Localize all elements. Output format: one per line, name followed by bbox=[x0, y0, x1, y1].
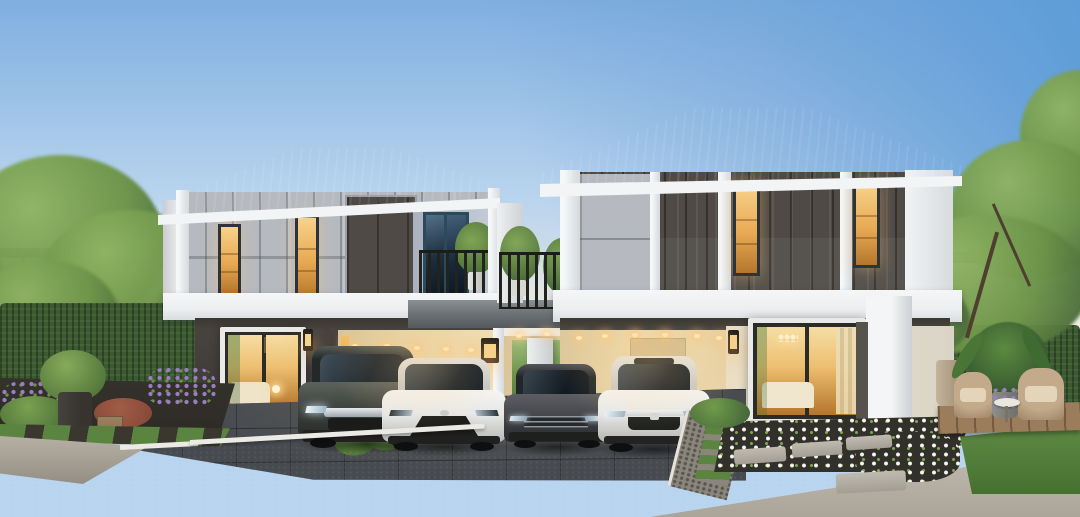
house-right-gray-panel-seam bbox=[580, 238, 650, 240]
side-table-leg bbox=[1005, 406, 1008, 422]
car-vw-headlight-left bbox=[509, 416, 527, 421]
car-wheel bbox=[470, 442, 494, 451]
house-right-corner-column bbox=[866, 296, 912, 428]
carport-glow-right bbox=[555, 330, 745, 430]
garden-left-purple-flowers-2 bbox=[146, 366, 216, 408]
carport-glow-left bbox=[330, 330, 510, 430]
car-wheel bbox=[394, 442, 418, 451]
house-right-roof bbox=[532, 100, 968, 186]
car-wheel bbox=[609, 443, 633, 452]
house-right-interior-curtains bbox=[836, 328, 856, 414]
house-right-corner-panel bbox=[905, 170, 953, 300]
house-right-side-return bbox=[856, 322, 868, 422]
stepping-stone bbox=[836, 470, 907, 494]
car-wheel bbox=[514, 440, 536, 448]
house-right-interior-sofa bbox=[762, 382, 814, 408]
scene-duplex-render: Twin two-storey modern houses at dusk — … bbox=[0, 0, 1080, 517]
house-right-pilaster-4 bbox=[840, 172, 852, 298]
house-right-interior-chandelier bbox=[778, 334, 798, 342]
house-right-door-green-reflection bbox=[757, 327, 767, 415]
wicker-armchair-right-cushion bbox=[1025, 386, 1057, 402]
house-right-window-2 bbox=[853, 182, 880, 268]
wicker-armchair-left-cushion bbox=[960, 388, 986, 402]
car-wheel bbox=[310, 438, 336, 448]
car-suv-headlight-left bbox=[305, 406, 327, 413]
house-right-sliding-door bbox=[748, 318, 866, 424]
house-right-window-1 bbox=[733, 182, 760, 276]
